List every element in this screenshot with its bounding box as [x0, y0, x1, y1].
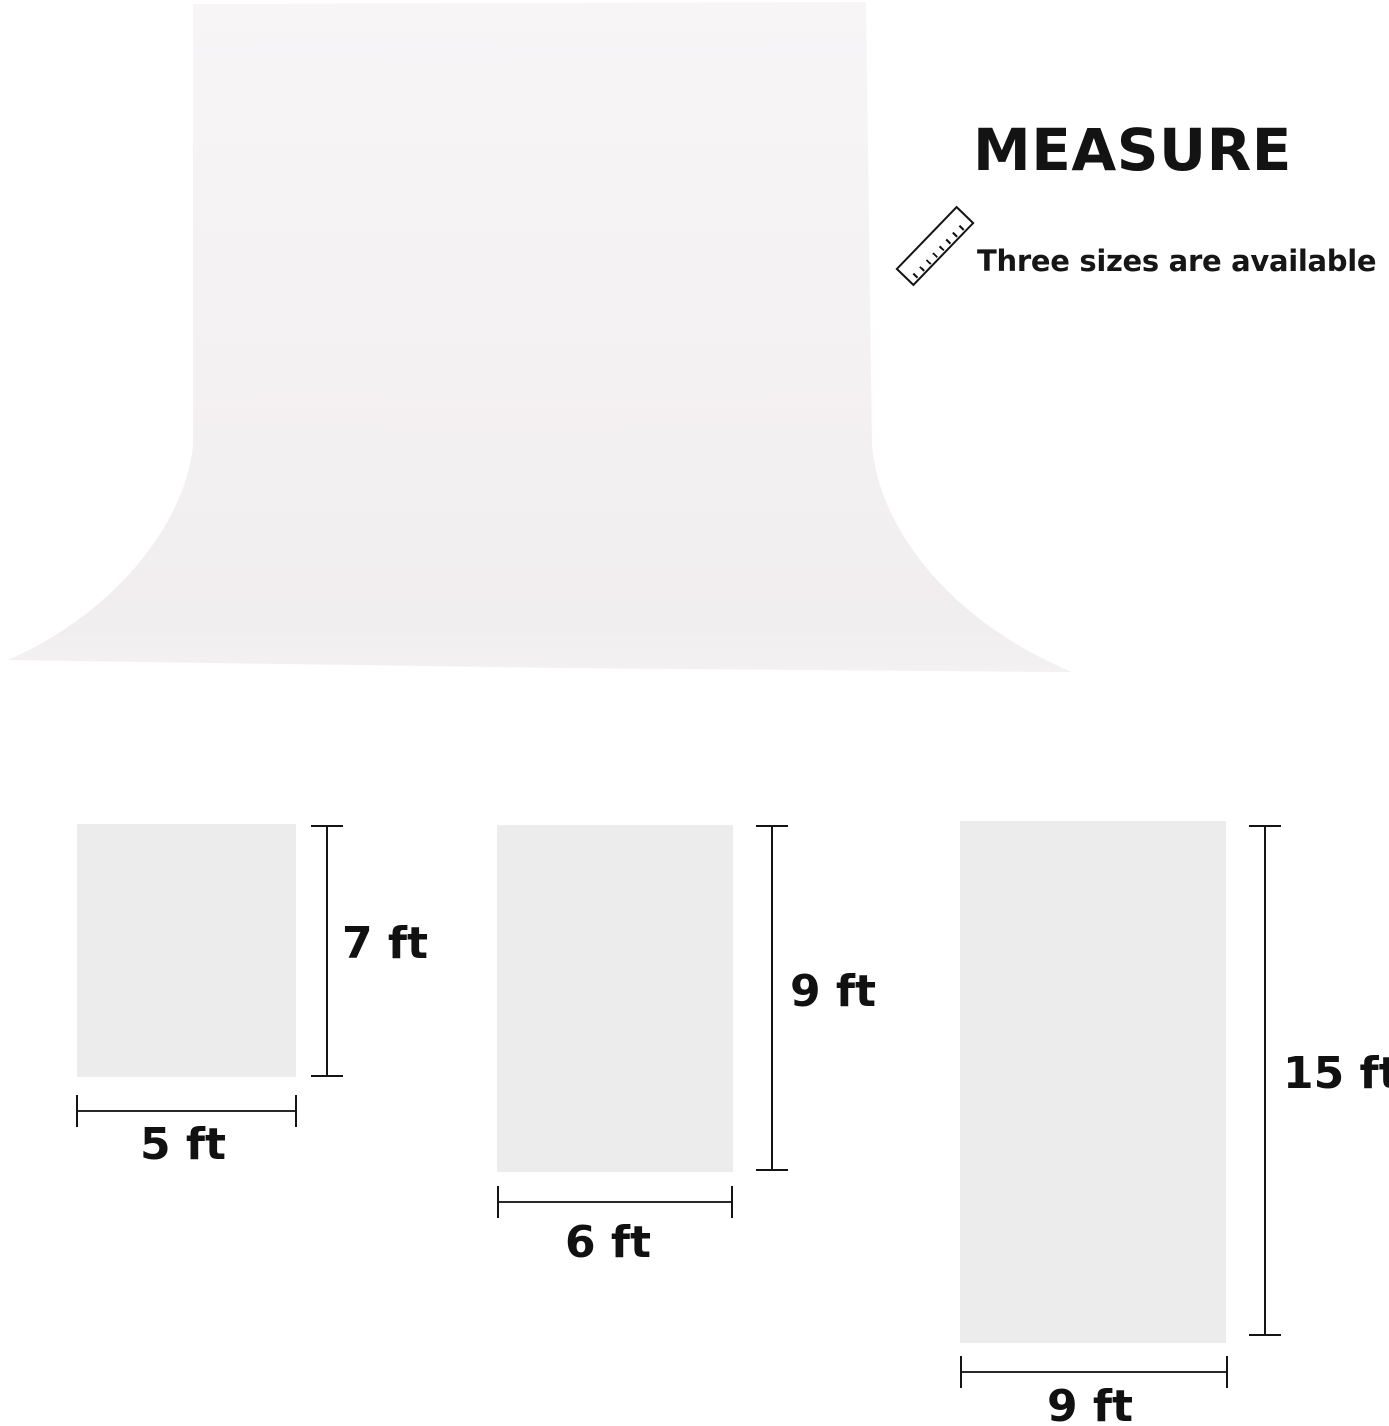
height-label-9x15: 15 ft	[1283, 1051, 1389, 1097]
measure-title: MEASURE	[973, 120, 1292, 181]
width-label-5x7: 5 ft	[133, 1122, 233, 1168]
width-label-9x15: 9 ft	[1040, 1384, 1140, 1426]
measure-subtitle: Three sizes are available	[977, 246, 1376, 278]
width-measure-line-5x7	[76, 1110, 297, 1112]
height-label-5x7: 7 ft	[335, 921, 435, 967]
backdrop-size-infographic: MEASURE Three sizes are available 7 ft 5…	[0, 0, 1389, 1426]
ruler-icon	[895, 206, 975, 286]
ruler-icon-ticks	[913, 223, 967, 279]
size-swatch-9x15	[960, 821, 1226, 1343]
height-measure-line-5x7	[326, 825, 328, 1077]
backdrop-sweep-shape	[8, 2, 1072, 672]
backdrop-sweep-illustration	[0, 0, 1100, 690]
width-measure-line-6x9	[497, 1201, 733, 1203]
height-measure-line-9x15	[1264, 825, 1266, 1336]
height-measure-line-6x9	[771, 825, 773, 1171]
width-measure-line-9x15	[960, 1371, 1228, 1373]
height-label-6x9: 9 ft	[783, 969, 883, 1015]
ruler-icon-body	[895, 206, 974, 287]
size-swatch-6x9	[497, 825, 733, 1172]
width-label-6x9: 6 ft	[558, 1220, 658, 1266]
size-swatch-5x7	[77, 824, 296, 1077]
